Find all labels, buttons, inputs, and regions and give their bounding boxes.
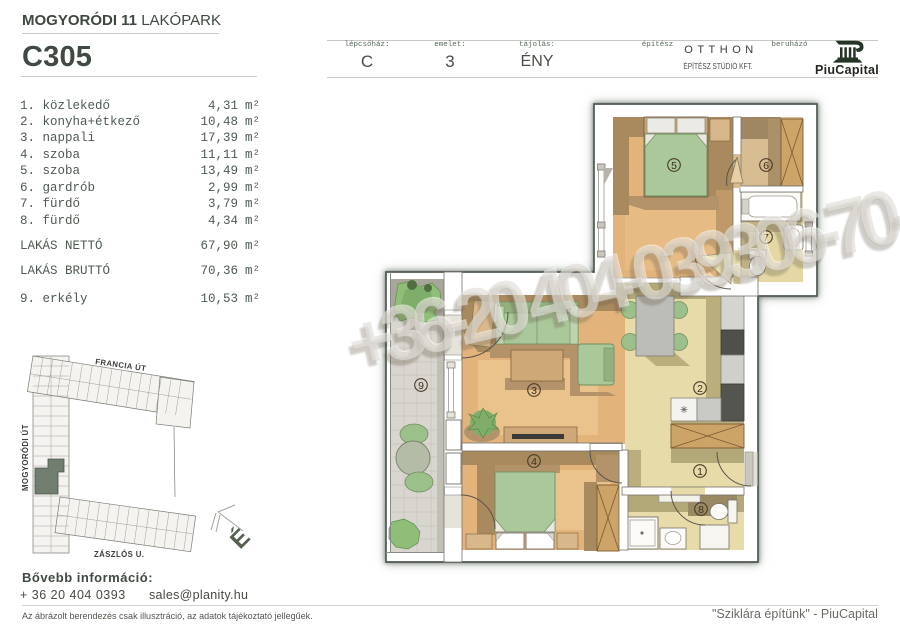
svg-text:8: 8	[698, 504, 704, 516]
svg-text:5: 5	[671, 160, 677, 172]
svg-text:2: 2	[697, 383, 703, 395]
svg-text:É: É	[224, 523, 255, 554]
svg-text:4: 4	[531, 456, 537, 468]
svg-text:MOGYORÓDI ÚT: MOGYORÓDI ÚT	[21, 424, 30, 491]
svg-text:1: 1	[697, 466, 703, 478]
svg-text:6: 6	[763, 160, 769, 172]
svg-text:9: 9	[418, 380, 424, 392]
svg-text:ZÁSZLÓS U.: ZÁSZLÓS U.	[94, 550, 144, 559]
svg-text:3: 3	[531, 385, 537, 397]
